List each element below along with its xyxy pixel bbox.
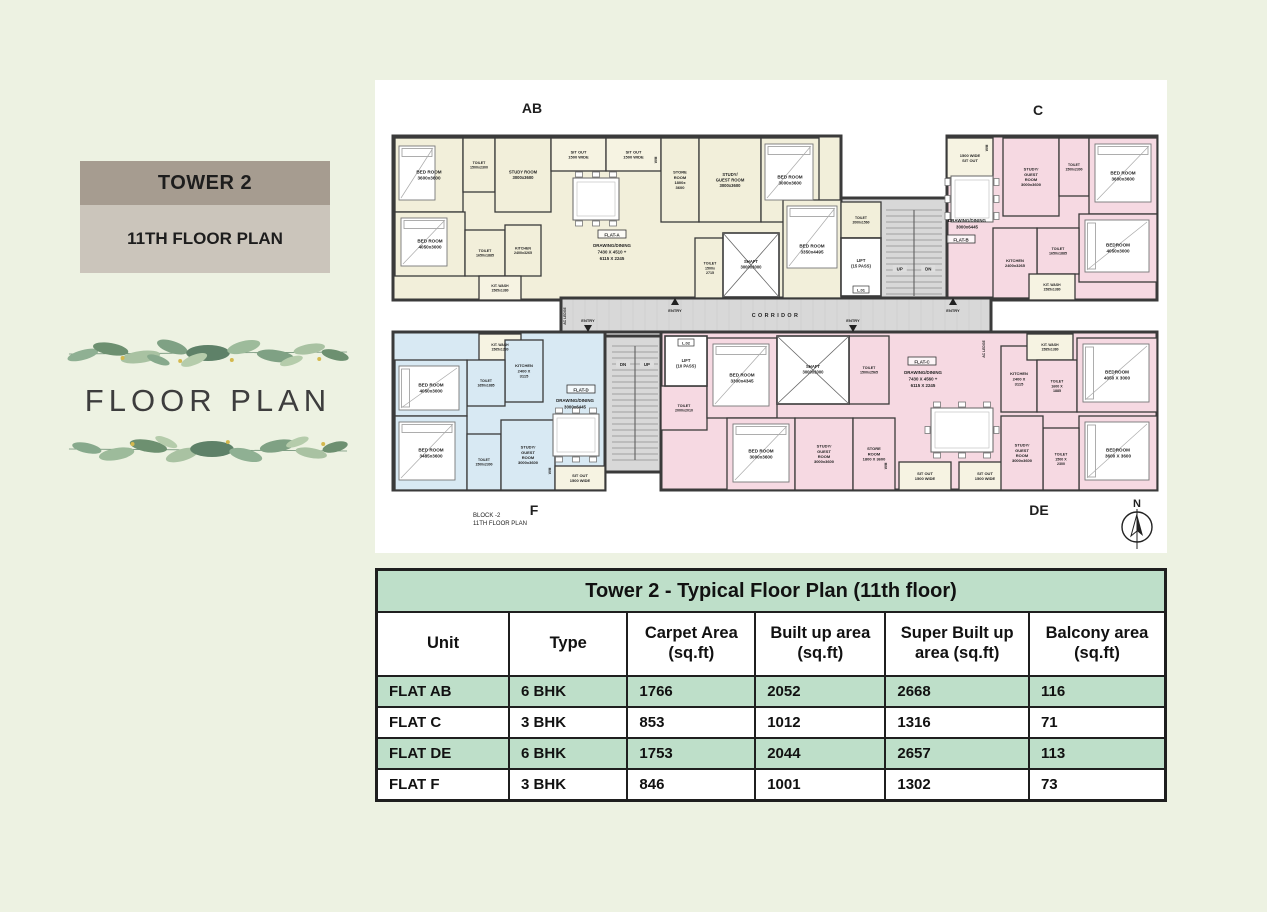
svg-text:TOILET: TOILET bbox=[479, 249, 493, 253]
svg-text:SHAFT: SHAFT bbox=[744, 259, 758, 264]
svg-text:3000x3600: 3000x3600 bbox=[750, 455, 773, 460]
svg-text:DN: DN bbox=[620, 362, 626, 367]
svg-text:1585x1380: 1585x1380 bbox=[1042, 347, 1059, 351]
svg-text:3600: 3600 bbox=[676, 185, 686, 190]
svg-text:6115 X 2245: 6115 X 2245 bbox=[911, 383, 936, 388]
svg-text:3115: 3115 bbox=[520, 374, 529, 379]
svg-text:3485x3600: 3485x3600 bbox=[420, 454, 443, 459]
svg-text:3000x3600: 3000x3600 bbox=[720, 183, 742, 188]
col-type: Type bbox=[509, 612, 627, 676]
svg-text:LIFT: LIFT bbox=[682, 358, 691, 363]
svg-text:DRAWING/DINING: DRAWING/DINING bbox=[556, 398, 594, 403]
floor-plan-card: BED ROOM3600x3600TOILET1500x2300STUDY RO… bbox=[375, 80, 1167, 553]
svg-text:1500 WIDE: 1500 WIDE bbox=[915, 476, 936, 481]
svg-text:GUEST ROOM: GUEST ROOM bbox=[716, 177, 745, 182]
leaf-decoration-bottom bbox=[63, 424, 353, 476]
svg-text:1500x2565: 1500x2565 bbox=[860, 371, 878, 375]
svg-text:1600 X: 1600 X bbox=[1051, 384, 1063, 388]
svg-text:1500 WIDE: 1500 WIDE bbox=[975, 476, 996, 481]
svg-text:3000x3000: 3000x3000 bbox=[803, 369, 825, 374]
svg-text:SIT OUT: SIT OUT bbox=[962, 158, 978, 163]
floor-plan-title: FLOOR PLAN bbox=[63, 383, 353, 419]
svg-text:FLAT-A: FLAT-A bbox=[604, 233, 620, 238]
cell-builtup: 1001 bbox=[755, 769, 885, 801]
cell-unit: FLAT F bbox=[377, 769, 510, 801]
cell-builtup: 1012 bbox=[755, 707, 885, 738]
svg-text:BED ROOM: BED ROOM bbox=[729, 373, 754, 378]
svg-text:TOILET: TOILET bbox=[704, 262, 718, 266]
cell-type: 6 BHK bbox=[509, 738, 627, 769]
cell-unit: FLAT AB bbox=[377, 676, 510, 707]
svg-text:TOILET: TOILET bbox=[478, 458, 491, 462]
cell-carpet: 1753 bbox=[627, 738, 755, 769]
svg-text:TOILET: TOILET bbox=[855, 216, 868, 220]
cell-builtup: 2044 bbox=[755, 738, 885, 769]
table-row: FLAT DE 6 BHK 1753 2044 2657 113 bbox=[377, 738, 1166, 769]
svg-text:6115 X 2245: 6115 X 2245 bbox=[600, 256, 625, 261]
svg-text:1500 WIDE: 1500 WIDE bbox=[568, 155, 589, 160]
table-row: FLAT C 3 BHK 853 1012 1316 71 bbox=[377, 707, 1166, 738]
svg-text:TOILET: TOILET bbox=[863, 366, 877, 370]
svg-text:1500x2300: 1500x2300 bbox=[1066, 167, 1083, 171]
svg-text:C: C bbox=[1033, 102, 1043, 118]
svg-text:4050x3000: 4050x3000 bbox=[1107, 249, 1130, 254]
svg-text:CORRIDOR: CORRIDOR bbox=[752, 313, 801, 319]
svg-text:ENTRY: ENTRY bbox=[668, 308, 682, 313]
svg-text:KIT. WASH: KIT. WASH bbox=[491, 343, 509, 347]
cell-balcony: 113 bbox=[1029, 738, 1166, 769]
svg-text:7430 X 4560 +: 7430 X 4560 + bbox=[909, 377, 938, 382]
svg-text:W/M: W/M bbox=[884, 462, 888, 469]
cell-type: 3 BHK bbox=[509, 769, 627, 801]
svg-text:1650x1885: 1650x1885 bbox=[1049, 252, 1067, 256]
svg-text:BEDROOM: BEDROOM bbox=[1106, 448, 1130, 453]
svg-text:7430 X 4510 +: 7430 X 4510 + bbox=[598, 250, 627, 255]
svg-text:BLOCK -2: BLOCK -2 bbox=[473, 513, 501, 519]
table-row: FLAT AB 6 BHK 1766 2052 2668 116 bbox=[377, 676, 1166, 707]
cell-unit: FLAT C bbox=[377, 707, 510, 738]
svg-text:STUDY ROOM: STUDY ROOM bbox=[509, 170, 538, 175]
svg-text:1500 X: 1500 X bbox=[1055, 457, 1067, 461]
cell-carpet: 846 bbox=[627, 769, 755, 801]
svg-text:KIT. WASH: KIT. WASH bbox=[1043, 283, 1061, 287]
svg-text:3000x3600: 3000x3600 bbox=[814, 459, 835, 464]
floor-label: 11TH FLOOR PLAN bbox=[80, 205, 330, 273]
svg-text:1565x1230: 1565x1230 bbox=[492, 347, 509, 351]
floorplan-compass: N bbox=[1122, 498, 1152, 549]
cell-balcony: 71 bbox=[1029, 707, 1166, 738]
svg-text:3000x3600: 3000x3600 bbox=[1012, 458, 1033, 463]
svg-text:2400x3265: 2400x3265 bbox=[1005, 263, 1026, 268]
floor-plan-svg: BED ROOM3600x3600TOILET1500x2300STUDY RO… bbox=[375, 80, 1167, 553]
svg-text:F: F bbox=[530, 502, 539, 518]
cell-carpet: 1766 bbox=[627, 676, 755, 707]
svg-text:3000x3600: 3000x3600 bbox=[518, 460, 539, 465]
svg-text:3300x4345: 3300x4345 bbox=[731, 379, 754, 384]
svg-text:3000x6445: 3000x6445 bbox=[564, 405, 587, 410]
svg-text:1585x1380: 1585x1380 bbox=[1044, 287, 1061, 291]
svg-text:3600x3600: 3600x3600 bbox=[418, 176, 441, 181]
col-balcony-area: Balcony area (sq.ft) bbox=[1029, 612, 1166, 676]
page: TOWER 2 11TH FLOOR PLAN FLOOR PLAN bbox=[0, 0, 1267, 912]
svg-text:TOILET: TOILET bbox=[678, 404, 692, 408]
svg-text:3000x3600: 3000x3600 bbox=[779, 181, 802, 186]
svg-text:BED ROOM: BED ROOM bbox=[417, 239, 442, 244]
svg-text:DRAWING/DINING: DRAWING/DINING bbox=[948, 218, 986, 223]
svg-text:3115: 3115 bbox=[1015, 382, 1024, 387]
col-builtup-area: Built up area (sq.ft) bbox=[755, 612, 885, 676]
svg-text:1500x2300: 1500x2300 bbox=[470, 166, 488, 170]
svg-text:KIT. WASH: KIT. WASH bbox=[1041, 343, 1059, 347]
svg-text:DN: DN bbox=[925, 267, 931, 272]
svg-text:3600 X 3600: 3600 X 3600 bbox=[1105, 454, 1132, 459]
svg-text:FLAT-C: FLAT-C bbox=[914, 360, 930, 365]
dining-table-icon bbox=[573, 178, 619, 220]
col-carpet-area: Carpet Area (sq.ft) bbox=[627, 612, 755, 676]
svg-text:3000x3600: 3000x3600 bbox=[513, 175, 535, 180]
tower-card: TOWER 2 11TH FLOOR PLAN bbox=[80, 161, 330, 273]
svg-text:4050 X 3000: 4050 X 3000 bbox=[1104, 376, 1131, 381]
dining-table-icon bbox=[951, 176, 993, 222]
table-title: Tower 2 - Typical Floor Plan (11th floor… bbox=[377, 570, 1166, 613]
svg-text:BEDROOM: BEDROOM bbox=[1106, 243, 1130, 248]
svg-text:UP: UP bbox=[644, 362, 650, 367]
svg-text:4050x3000: 4050x3000 bbox=[420, 389, 443, 394]
svg-text:3000x3000: 3000x3000 bbox=[741, 264, 763, 269]
svg-text:FLAT-D: FLAT-D bbox=[573, 388, 588, 393]
svg-text:ENTRY: ENTRY bbox=[581, 318, 595, 323]
svg-text:1885: 1885 bbox=[1053, 389, 1061, 393]
svg-text:AB: AB bbox=[522, 100, 542, 116]
svg-text:TOILET: TOILET bbox=[1051, 380, 1065, 384]
svg-text:L.02: L.02 bbox=[682, 340, 691, 345]
cell-super: 1316 bbox=[885, 707, 1029, 738]
svg-text:2400x3265: 2400x3265 bbox=[514, 251, 532, 255]
cell-builtup: 2052 bbox=[755, 676, 885, 707]
svg-text:TOILET: TOILET bbox=[1055, 453, 1069, 457]
svg-text:1650x1885: 1650x1885 bbox=[478, 383, 495, 387]
svg-text:UP: UP bbox=[897, 267, 903, 272]
svg-text:11TH FLOOR PLAN: 11TH FLOOR PLAN bbox=[473, 521, 527, 527]
area-table: Tower 2 - Typical Floor Plan (11th floor… bbox=[375, 568, 1167, 802]
cell-type: 3 BHK bbox=[509, 707, 627, 738]
svg-text:LIFT: LIFT bbox=[857, 258, 866, 263]
tower-label: TOWER 2 bbox=[80, 161, 330, 205]
svg-text:W/M: W/M bbox=[985, 144, 989, 151]
svg-text:1500x2300: 1500x2300 bbox=[476, 462, 493, 466]
svg-text:(15 PASS): (15 PASS) bbox=[851, 263, 871, 268]
cell-super: 2657 bbox=[885, 738, 1029, 769]
svg-text:DRAWING/DINING: DRAWING/DINING bbox=[904, 370, 942, 375]
svg-text:W/M: W/M bbox=[654, 156, 658, 163]
svg-text:1500 WIDE: 1500 WIDE bbox=[623, 155, 644, 160]
svg-text:ENTRY: ENTRY bbox=[846, 318, 860, 323]
svg-text:3600x3600: 3600x3600 bbox=[1112, 177, 1135, 182]
cell-type: 6 BHK bbox=[509, 676, 627, 707]
svg-text:1500 WIDE: 1500 WIDE bbox=[570, 478, 591, 483]
cell-super: 2668 bbox=[885, 676, 1029, 707]
svg-text:(10 PASS): (10 PASS) bbox=[676, 363, 696, 368]
svg-text:KIT. WASH: KIT. WASH bbox=[491, 284, 509, 288]
svg-text:3000x3600: 3000x3600 bbox=[1021, 182, 1042, 187]
svg-text:BED ROOM: BED ROOM bbox=[418, 448, 443, 453]
svg-text:2000x1560: 2000x1560 bbox=[853, 220, 870, 224]
svg-text:BED ROOM: BED ROOM bbox=[777, 175, 802, 180]
svg-text:TOILET: TOILET bbox=[480, 379, 493, 383]
table-header-row: Unit Type Carpet Area (sq.ft) Built up a… bbox=[377, 612, 1166, 676]
cell-unit: FLAT DE bbox=[377, 738, 510, 769]
svg-text:DE: DE bbox=[1029, 502, 1048, 518]
svg-text:2300: 2300 bbox=[1057, 462, 1065, 466]
col-unit: Unit bbox=[377, 612, 510, 676]
svg-text:AC LEDGE: AC LEDGE bbox=[563, 307, 567, 325]
dining-table-icon bbox=[931, 408, 993, 452]
svg-text:SHAFT: SHAFT bbox=[806, 364, 820, 369]
cell-super: 1302 bbox=[885, 769, 1029, 801]
svg-text:BED ROOM: BED ROOM bbox=[418, 383, 443, 388]
svg-text:ENTRY: ENTRY bbox=[946, 308, 960, 313]
svg-text:2715: 2715 bbox=[706, 271, 714, 275]
svg-text:BED ROOM: BED ROOM bbox=[799, 244, 824, 249]
svg-text:DRAWING/DINING: DRAWING/DINING bbox=[593, 243, 631, 248]
svg-text:BED ROOM: BED ROOM bbox=[748, 449, 773, 454]
leaf-decoration-top bbox=[63, 327, 353, 379]
svg-text:N: N bbox=[1133, 498, 1141, 510]
svg-text:TOILET: TOILET bbox=[1068, 163, 1081, 167]
cell-balcony: 116 bbox=[1029, 676, 1166, 707]
svg-text:2000x2010: 2000x2010 bbox=[675, 409, 693, 413]
svg-text:3000x6445: 3000x6445 bbox=[956, 225, 979, 230]
svg-text:KITCHEN: KITCHEN bbox=[515, 246, 531, 250]
svg-text:BED ROOM: BED ROOM bbox=[1110, 171, 1135, 176]
svg-text:BEDROOM: BEDROOM bbox=[1105, 370, 1129, 375]
cell-balcony: 73 bbox=[1029, 769, 1166, 801]
svg-text:L.01: L.01 bbox=[857, 287, 866, 292]
svg-text:FLAT-B: FLAT-B bbox=[953, 238, 968, 243]
table-row: FLAT F 3 BHK 846 1001 1302 73 bbox=[377, 769, 1166, 801]
svg-text:1500x: 1500x bbox=[705, 266, 715, 270]
svg-text:BED ROOM: BED ROOM bbox=[416, 170, 441, 175]
svg-text:AC LEDGE: AC LEDGE bbox=[982, 340, 986, 358]
svg-text:1800 X 3600: 1800 X 3600 bbox=[863, 457, 886, 462]
svg-text:3350x4495: 3350x4495 bbox=[801, 250, 824, 255]
svg-text:4050x3000: 4050x3000 bbox=[419, 245, 442, 250]
cell-carpet: 853 bbox=[627, 707, 755, 738]
svg-text:TOILET: TOILET bbox=[473, 161, 487, 165]
svg-text:1650x1885: 1650x1885 bbox=[476, 254, 494, 258]
col-super-builtup-area: Super Built up area (sq.ft) bbox=[885, 612, 1029, 676]
svg-text:1565x1380: 1565x1380 bbox=[492, 288, 509, 292]
svg-text:TOILET: TOILET bbox=[1052, 247, 1066, 251]
svg-text:STUDY/: STUDY/ bbox=[722, 172, 738, 177]
dining-table-icon bbox=[553, 414, 599, 456]
svg-text:W/M: W/M bbox=[548, 467, 552, 474]
